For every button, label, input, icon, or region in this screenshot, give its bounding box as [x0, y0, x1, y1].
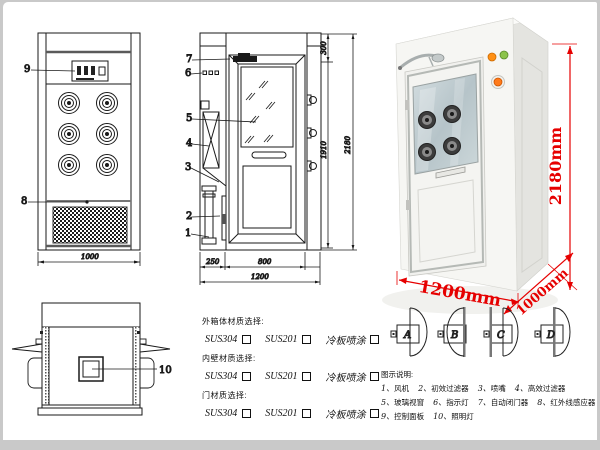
door-diagram-d: D — [535, 307, 570, 357]
material-checkbox[interactable] — [242, 335, 251, 344]
material-option-label: 冷板喷涂 — [325, 369, 365, 384]
material-heading: 外箱体材质选择: — [202, 317, 392, 327]
material-option-label: SUS201 — [265, 371, 297, 382]
label-hepa: 4 — [186, 138, 192, 149]
material-option-label: 冷板喷涂 — [325, 332, 365, 347]
door-diagram-a-label: A — [403, 330, 411, 341]
material-checkbox[interactable] — [370, 372, 379, 381]
front-dim-width-text: 1000 — [81, 253, 99, 261]
door — [229, 53, 305, 243]
door-swing-diagrams: A B C D — [391, 307, 570, 357]
material-group-outer-box: 外箱体材质选择: SUS304 SUS201 冷板喷涂 — [202, 317, 392, 347]
label-control-panel: 9 — [24, 64, 30, 75]
material-checkbox[interactable] — [302, 335, 311, 344]
green-indicator-light — [500, 51, 508, 59]
control-panel — [72, 61, 108, 81]
label-nozzle: 3 — [185, 162, 191, 173]
label-indicator: 6 — [185, 68, 191, 79]
door-diagram-b-label: B — [450, 330, 458, 341]
door-diagram-d-label: D — [546, 330, 555, 341]
legend-item: 6、指示灯 — [433, 397, 469, 408]
dim-door-width: 800 — [258, 258, 272, 266]
material-options: 外箱体材质选择: SUS304 SUS201 冷板喷涂 内壁材质选择: SUS3… — [202, 317, 392, 428]
material-option-label: SUS304 — [205, 334, 237, 345]
legend-item: 9、控制面板 — [381, 411, 424, 422]
material-checkbox[interactable] — [242, 409, 251, 418]
material-option-label: SUS201 — [265, 334, 297, 345]
product-photo: 2180mm 1200mm 1000mm — [382, 18, 577, 319]
prefilter — [222, 214, 226, 224]
front-view: 1000 9 8 — [21, 33, 140, 266]
material-checkbox[interactable] — [242, 372, 251, 381]
legend-item: 1、风机 — [381, 383, 409, 394]
door-glass — [241, 67, 293, 147]
label-fan: 1 — [185, 228, 191, 239]
label-door-closer: 7 — [186, 54, 192, 65]
dim-door-height: 1910 — [320, 141, 328, 159]
door-diagram-c: C — [484, 307, 518, 357]
label-prefilter: 2 — [186, 211, 192, 222]
glass-hatch-marks — [245, 81, 275, 143]
legend-row-3: 9、控制面板 10、照明灯 — [381, 411, 597, 422]
photo-dim-height: 2180mm — [546, 127, 565, 205]
legend-item: 10、照明灯 — [433, 411, 474, 422]
material-option-label: 冷板喷涂 — [325, 406, 365, 421]
material-option-label: SUS304 — [205, 408, 237, 419]
material-group-door: 门材质选择: SUS304 SUS201 冷板喷涂 — [202, 391, 392, 421]
material-checkbox[interactable] — [302, 409, 311, 418]
door-swing-right — [140, 339, 170, 388]
start-button — [494, 78, 502, 86]
label-grille: 8 — [21, 196, 27, 207]
legend-item: 5、玻璃视窗 — [381, 397, 424, 408]
legend-title: 图示说明: — [381, 370, 597, 380]
cabinet-side-face — [513, 18, 548, 291]
legend-item: 8、红外线感应器 — [537, 397, 595, 408]
door-hinge-bottom — [406, 200, 410, 210]
door-diagram-a: A — [391, 308, 427, 356]
material-group-inner-wall: 内壁材质选择: SUS304 SUS201 冷板喷涂 — [202, 354, 392, 384]
material-checkbox[interactable] — [302, 372, 311, 381]
label-lamp: 10 — [159, 365, 172, 376]
air-return-grille — [53, 207, 127, 243]
fan-column — [205, 191, 213, 238]
material-heading: 内壁材质选择: — [202, 354, 392, 364]
legend-item: 7、自动闭门器 — [478, 397, 529, 408]
material-option-label: SUS201 — [265, 408, 297, 419]
front-nozzles — [59, 93, 118, 176]
material-heading: 门材质选择: — [202, 391, 392, 401]
side-wall-nozzles — [307, 95, 317, 171]
door-diagram-b: B — [438, 307, 466, 357]
material-option-label: SUS304 — [205, 371, 237, 382]
dim-top-plenum: 300 — [320, 41, 328, 55]
filter-fan-assembly — [201, 101, 226, 244]
door-closer — [233, 56, 257, 62]
legend-item: 4、高效过滤器 — [515, 383, 566, 394]
top-view: 10 — [12, 303, 172, 415]
label-glass: 5 — [186, 113, 192, 124]
orange-indicator-light — [488, 53, 496, 61]
dim-total-height: 2180 — [344, 136, 352, 155]
indicator-lights — [203, 71, 219, 75]
legend-row-2: 5、玻璃视窗 6、指示灯 7、自动闭门器 8、红外线感应器 — [381, 397, 597, 408]
door-diagram-c-label: C — [497, 330, 505, 341]
legend-item: 3、喷嘴 — [478, 383, 506, 394]
door-hinge-top — [405, 100, 409, 110]
side-view: 7 6 5 4 3 2 1 300 1910 2180 — [185, 33, 357, 285]
dim-step: 250 — [205, 258, 220, 266]
legend: 图示说明: 1、风机 2、初效过滤器 3、喷嘴 4、高效过滤器 5、玻璃视窗 6… — [381, 370, 597, 422]
top-view-outline — [42, 303, 140, 408]
material-checkbox[interactable] — [370, 409, 379, 418]
legend-item: 2、初效过滤器 — [418, 383, 469, 394]
door-swing-left — [12, 339, 42, 388]
side-cabinet-outline — [200, 33, 321, 250]
door-handle — [252, 152, 286, 158]
material-checkbox[interactable] — [370, 335, 379, 344]
dim-total-width: 1200 — [251, 273, 269, 281]
legend-row-1: 1、风机 2、初效过滤器 3、喷嘴 4、高效过滤器 — [381, 383, 597, 394]
